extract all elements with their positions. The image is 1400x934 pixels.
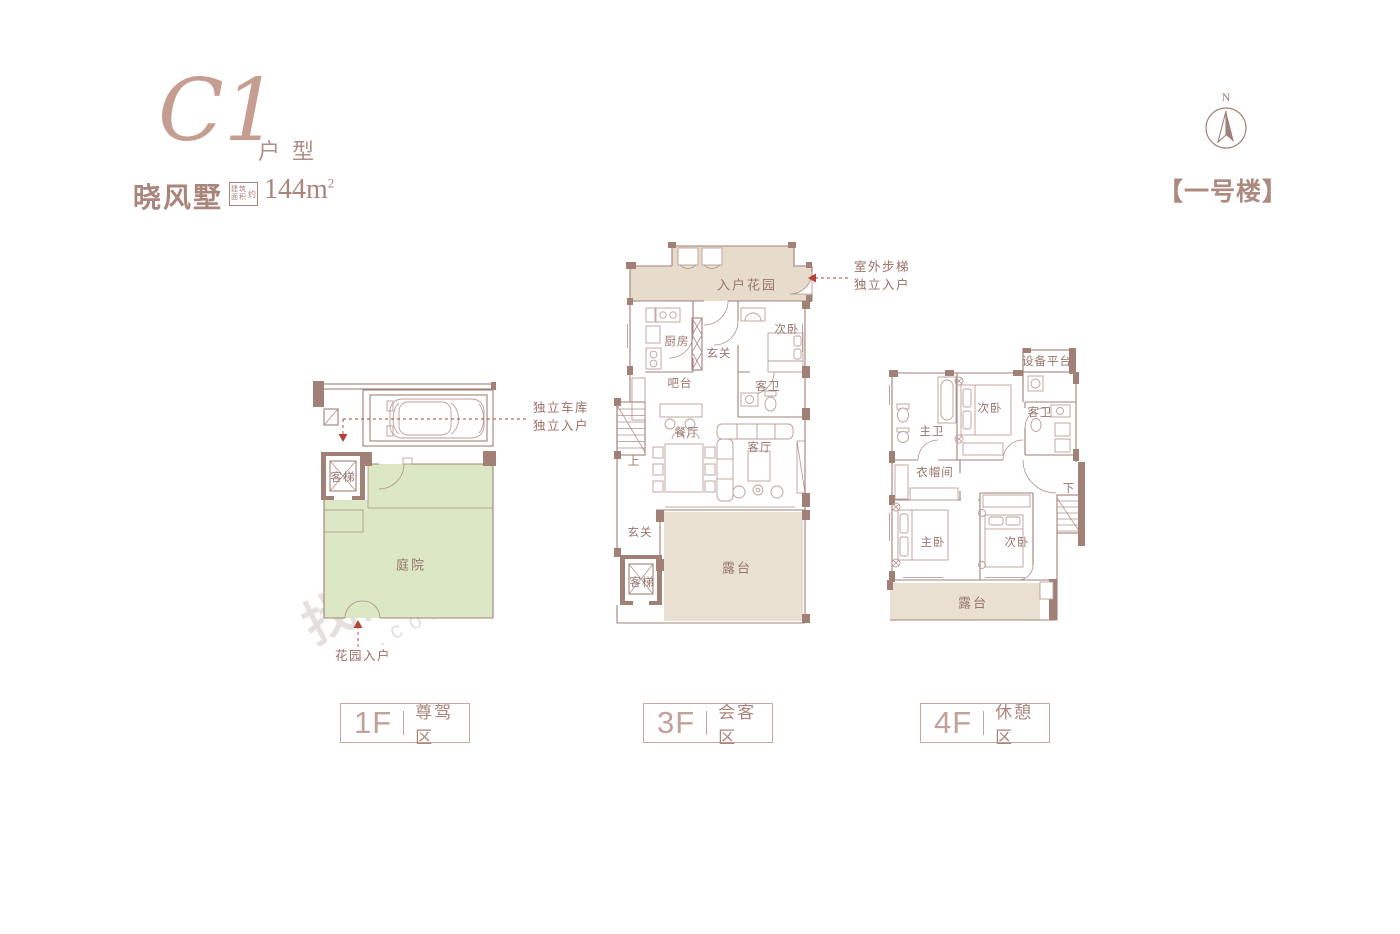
unit-type-label: 户型 (258, 134, 326, 166)
floor-badge-1f: 1F 尊驾区 (340, 703, 470, 743)
room-label-elevator-1f: 客梯 (331, 469, 356, 485)
room-label-bedroom2-lower: 次卧 (1005, 534, 1030, 550)
floor-divider (403, 711, 404, 735)
floor-badge-3f: 3F 会客区 (643, 703, 773, 743)
room-label-dining: 餐厅 (675, 424, 700, 440)
room-label-master-bedroom: 主卧 (921, 534, 946, 550)
room-label-master-bath: 主卫 (920, 423, 945, 439)
building-label: 【一号楼】 (1158, 172, 1288, 208)
room-label-terrace-3f: 露台 (722, 558, 752, 577)
floor-zone-4f: 休憩区 (995, 698, 1049, 748)
room-label-bedroom2-upper: 次卧 (978, 400, 1003, 416)
area-sup: 2 (328, 176, 335, 191)
note-garage-line1: 独立车库 (533, 399, 589, 417)
floorplan-page: C1 户型 晓风墅 建筑 面积 约 144m2 N 【一号楼】 找房 .com (0, 0, 1400, 934)
note-garden-entry: 花园入户 (335, 647, 391, 665)
area-value: 144m2 (264, 174, 334, 206)
room-label-guest-bath-4f: 客卫 (1028, 404, 1053, 420)
room-label-guest-bath-3f: 客卫 (756, 378, 781, 394)
room-label-foyer-lower: 玄关 (628, 524, 653, 540)
compass-icon (1204, 106, 1248, 150)
floor-zone-1f: 尊驾区 (415, 698, 469, 748)
area-label-bottom: 面积 (231, 194, 247, 202)
note-outdoor-line1: 室外步梯 (854, 258, 910, 276)
room-label-cloakroom: 衣帽间 (916, 464, 954, 480)
room-label-bedroom2-3f: 次卧 (775, 321, 800, 337)
floor-number-4f: 4F (934, 705, 972, 741)
area-label-top: 建筑 (231, 186, 247, 194)
room-label-living: 客厅 (748, 439, 773, 455)
note-garage: 独立车库 独立入户 (533, 399, 589, 435)
room-label-foyer-3f: 玄关 (707, 345, 732, 361)
floor-zone-3f: 会客区 (718, 698, 772, 748)
area-label-text: 建筑 面积 (231, 186, 247, 202)
room-label-kitchen: 厨房 (665, 333, 690, 349)
note-outdoor-stairs: 室外步梯 独立入户 (854, 258, 910, 294)
floor-badge-4f: 4F 休憩区 (920, 703, 1050, 743)
floor-divider (983, 711, 984, 735)
area-label-box: 建筑 面积 约 (229, 182, 258, 206)
room-label-elevator-3f: 客梯 (630, 574, 655, 590)
area-number: 144m (264, 174, 328, 205)
compass-north-label: N (1214, 90, 1238, 105)
area-label-about: 约 (248, 189, 256, 200)
note-outdoor-line2: 独立入户 (854, 276, 910, 294)
room-label-stairs-up: 上 (628, 453, 641, 469)
room-label-stairs-down: 下 (1063, 480, 1076, 496)
note-garage-line2: 独立入户 (533, 417, 589, 435)
floor-number-3f: 3F (657, 705, 695, 741)
room-label-terrace-4f: 露台 (958, 593, 988, 612)
room-label-entry-garden: 入户花园 (717, 275, 777, 294)
room-label-courtyard: 庭院 (396, 555, 426, 574)
plan-1f-drawing (303, 373, 529, 658)
project-name: 晓风墅 (133, 176, 223, 216)
floor-number-1f: 1F (354, 705, 392, 741)
room-label-equipment-platform: 设备平台 (1022, 353, 1072, 369)
floor-divider (706, 711, 707, 735)
room-label-bar: 吧台 (668, 375, 693, 391)
